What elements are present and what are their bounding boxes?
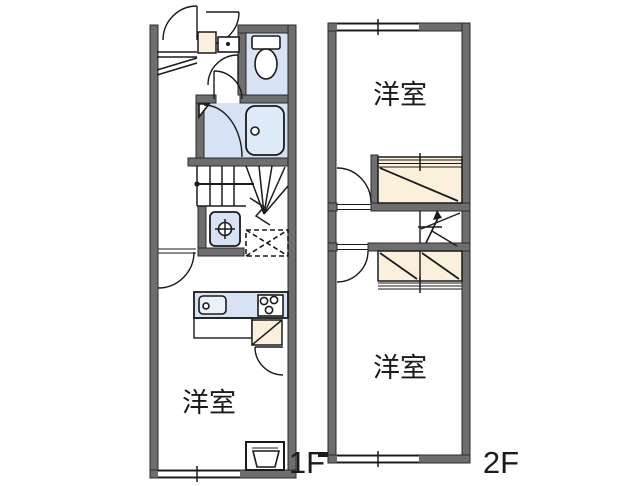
window-1f-bottom xyxy=(158,466,240,482)
room-label-1f: 洋室 xyxy=(182,388,236,419)
floor-label-1f: 1F xyxy=(289,445,325,480)
lower-room-door-icon xyxy=(337,245,368,283)
floor-plan-1f: 洋室 1F xyxy=(150,6,325,482)
room-label-2f-bottom: 洋室 xyxy=(373,353,427,384)
floor-plan-canvas: 洋室 1F xyxy=(0,0,640,486)
floor-plan-2f: 洋室 洋室 2F xyxy=(318,19,519,480)
closet-upper-icon xyxy=(378,153,462,203)
washbasin-cabinet-icon xyxy=(218,37,239,52)
hall-door-icon xyxy=(158,249,196,288)
entrance-step xyxy=(157,52,197,75)
shoe-cabinet-icon xyxy=(198,32,216,53)
staircase-2f-icon xyxy=(418,210,460,246)
counter-edge xyxy=(194,318,252,338)
washing-machine-pan-icon xyxy=(210,212,240,246)
toilet-icon xyxy=(252,36,280,79)
gas-stove-icon xyxy=(258,295,283,316)
water-heater-icon xyxy=(246,442,284,470)
kitchen-closet-door-icon xyxy=(255,347,283,375)
refrigerator-space-icon xyxy=(246,230,288,256)
room-label-2f-top: 洋室 xyxy=(373,80,427,111)
kitchen-closet-icon xyxy=(252,320,282,345)
window-2f-top xyxy=(337,19,419,35)
staircase-1f-icon xyxy=(194,166,288,225)
window-2f-bottom xyxy=(337,451,419,467)
closet-lower-icon xyxy=(378,251,462,293)
toilet-door-icon xyxy=(208,55,238,85)
wall-tick xyxy=(318,452,328,457)
kitchen-sink-icon xyxy=(199,296,226,314)
floor-label-2f: 2F xyxy=(483,445,519,480)
upper-room-door-icon xyxy=(337,168,371,210)
bathtub-icon xyxy=(246,106,284,155)
